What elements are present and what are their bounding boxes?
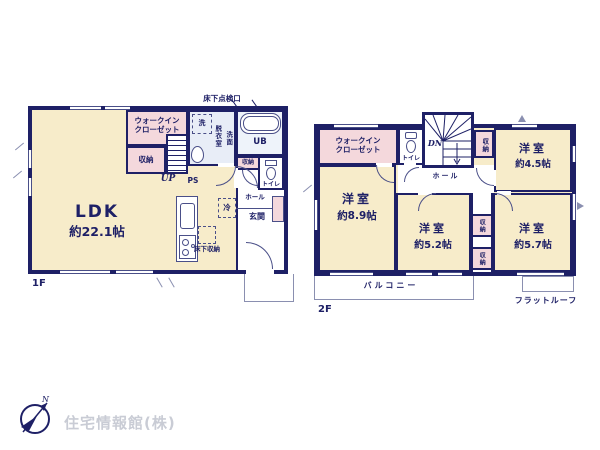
window-arrow-icon — [577, 202, 584, 210]
room57-name: 洋室 — [497, 222, 569, 235]
storage1-label: 収納 — [126, 155, 166, 164]
window-arrow-icon — [518, 115, 526, 122]
compass-n-label: N — [41, 395, 50, 404]
room52-name: 洋室 — [398, 222, 468, 235]
window — [572, 194, 576, 220]
bathtub-icon — [240, 113, 281, 134]
ldk-size: 約22.1帖 — [52, 224, 142, 239]
window — [330, 272, 373, 276]
window — [116, 270, 153, 274]
window — [517, 272, 564, 276]
underfloor-hatch-label: 床下点検口 — [182, 94, 262, 103]
window — [334, 124, 378, 128]
window — [512, 124, 537, 128]
ldk-name: LDK — [52, 202, 142, 222]
room89-name: 洋室 — [322, 192, 392, 206]
toilet-icon-2f — [405, 132, 417, 139]
underfloor-storage-label: 床下収納 — [188, 246, 226, 254]
storage-b-label: 収納 — [478, 250, 485, 268]
toilet2-label: トイレ — [398, 155, 424, 162]
wic2-label: ウォークイン クローゼット — [320, 136, 396, 154]
room57-size: 約5.7帖 — [497, 240, 569, 252]
room52-size: 約5.2帖 — [398, 240, 468, 252]
shoe-cabinet — [272, 196, 284, 222]
door-gap — [404, 163, 416, 167]
flat-roof-outline — [522, 276, 574, 292]
shutter-tick — [156, 277, 162, 287]
sink-icon — [180, 203, 195, 229]
wic-label: ウォークイン クローゼット — [127, 116, 187, 134]
floor1-label: 1F — [32, 278, 56, 290]
storage2-label: 収納 — [236, 159, 260, 166]
room89-size: 約8.9帖 — [322, 210, 392, 223]
porch-outline — [244, 274, 294, 302]
toilet-icon-1f — [265, 160, 277, 166]
floor1-outer-wall: ウォークイン クローゼット 収納 UP PS LDK 約22.1帖 ホール 玄関… — [28, 106, 288, 274]
window — [105, 106, 130, 110]
burner — [182, 239, 189, 246]
window — [28, 178, 32, 196]
window — [438, 272, 462, 276]
basin-icon — [191, 146, 204, 163]
room45-name: 洋室 — [494, 142, 572, 155]
floorplan-canvas: 床下点検口 ウォークイン クローゼット 収納 UP PS LDK 約22.1帖 … — [0, 0, 600, 450]
dn-label: DN — [426, 139, 444, 149]
floor2-label: 2F — [318, 304, 342, 316]
window — [70, 106, 101, 110]
floor2-plan: DN ウォークイン クローゼット トイレ 収納 洋室 約4.5帖 ホール 洋室 … — [312, 94, 594, 330]
window — [314, 200, 318, 230]
up-label: UP — [154, 174, 182, 185]
door-arc — [216, 166, 236, 186]
hall2-label: ホール — [418, 172, 474, 180]
window-tick — [15, 143, 24, 151]
storage-a-label: 収納 — [478, 217, 485, 235]
stairs-up — [166, 134, 188, 174]
floor1-plan: 床下点検口 ウォークイン クローゼット 収納 UP PS LDK 約22.1帖 … — [26, 94, 298, 320]
flat-roof-label: フラットルーフ — [498, 296, 594, 306]
window — [60, 270, 110, 274]
company-name: 住宅情報館(株) — [64, 414, 264, 432]
fridge-label: 冷 — [218, 203, 236, 212]
entrance-label: 玄関 — [240, 212, 274, 222]
window — [572, 146, 576, 162]
window-tick — [303, 185, 312, 193]
dressing-label: 脱衣室 — [213, 115, 221, 157]
bathtub-inner — [243, 116, 279, 131]
stairs-down: DN — [422, 112, 474, 168]
floor2-outer-wall: DN ウォークイン クローゼット トイレ 収納 洋室 約4.5帖 ホール 洋室 … — [314, 124, 576, 276]
vanity-label: 洗面 — [224, 121, 232, 155]
footer-logo: N 住宅情報館(株) — [14, 392, 294, 444]
compass-bird — [21, 416, 37, 431]
room45-size: 約4.5帖 — [494, 159, 572, 170]
underfloor-storage-box — [198, 226, 216, 244]
hall-label-1f: ホール — [238, 194, 272, 202]
ub-label: UB — [236, 137, 284, 147]
compass-icon: N — [14, 394, 58, 440]
balcony-label: バルコニー — [336, 281, 446, 291]
shutter-tick — [168, 277, 174, 287]
entrance-door-gap — [246, 270, 274, 274]
window-tick — [13, 171, 22, 179]
toilet-label-1f: トイレ — [258, 181, 284, 188]
washer-label: 洗 — [192, 119, 212, 127]
window — [28, 150, 32, 168]
window — [406, 272, 432, 276]
storage-stairs-label: 収納 — [480, 134, 488, 156]
ps-label: PS — [184, 176, 202, 185]
